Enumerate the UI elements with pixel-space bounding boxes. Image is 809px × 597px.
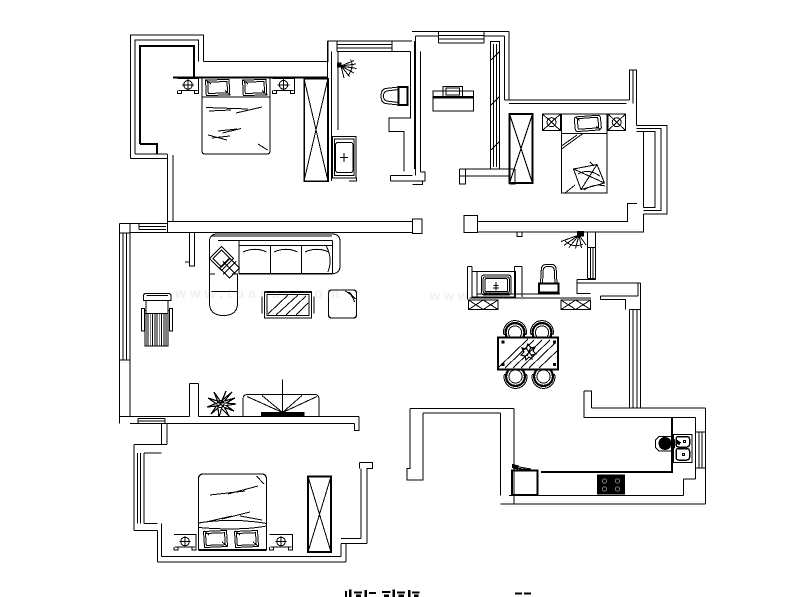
- svg-text:w w w . t u a n z: w w w . t u a n z: [429, 288, 527, 303]
- svg-text:w w w . t u a n z x . c o m: w w w . t u a n z x . c o m: [174, 285, 339, 301]
